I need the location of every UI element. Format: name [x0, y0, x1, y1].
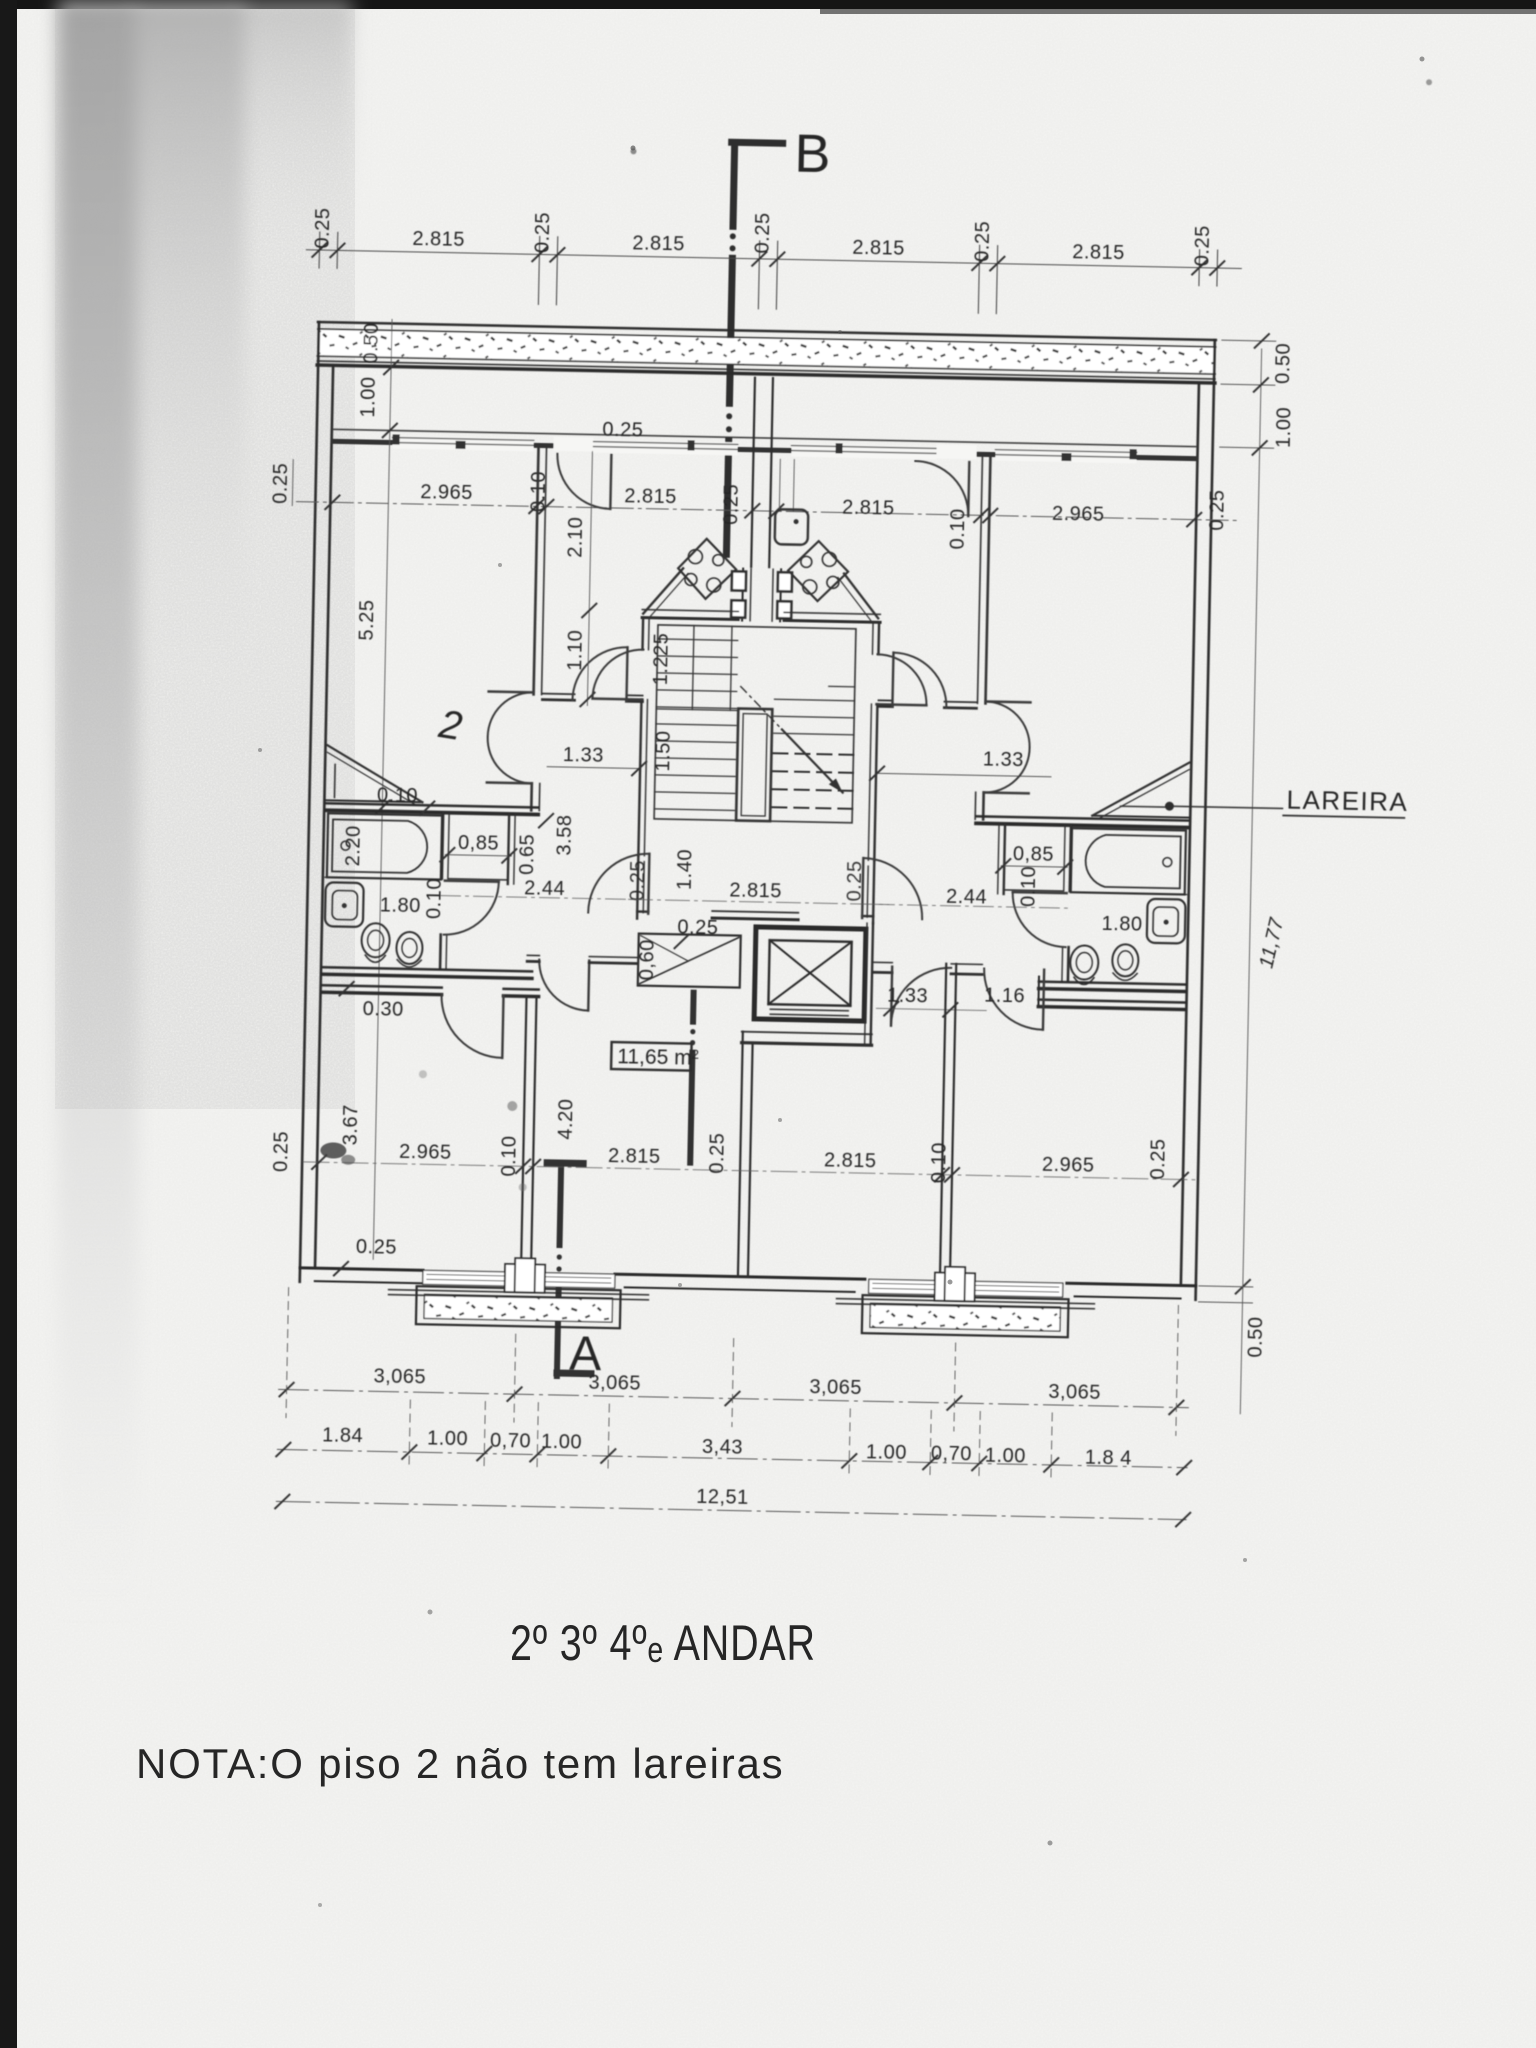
svg-text:0.25: 0.25 — [720, 484, 743, 525]
svg-text:LAREIRA: LAREIRA — [1286, 785, 1408, 817]
svg-text:2.20: 2.20 — [342, 825, 365, 866]
svg-text:0.25: 0.25 — [751, 212, 774, 253]
svg-text:0.25: 0.25 — [677, 916, 718, 939]
svg-text:0.25: 0.25 — [269, 463, 292, 504]
svg-text:0.50: 0.50 — [1244, 1316, 1267, 1357]
svg-text:B: B — [794, 124, 831, 185]
svg-text:0.25: 0.25 — [602, 419, 643, 442]
svg-text:2.44: 2.44 — [946, 886, 987, 909]
svg-text:0.25: 0.25 — [531, 212, 554, 253]
svg-text:3,065: 3,065 — [1048, 1381, 1101, 1404]
svg-text:0.25: 0.25 — [626, 860, 649, 901]
svg-text:1.00: 1.00 — [985, 1445, 1026, 1468]
svg-text:1.00: 1.00 — [541, 1431, 582, 1454]
svg-text:1.00: 1.00 — [866, 1441, 907, 1464]
svg-text:1.80: 1.80 — [380, 894, 421, 917]
svg-text:12,51: 12,51 — [696, 1486, 749, 1509]
svg-text:2.815: 2.815 — [729, 879, 782, 902]
svg-text:0.10: 0.10 — [1017, 866, 1040, 907]
svg-text:0,70: 0,70 — [490, 1430, 531, 1453]
svg-text:1.00: 1.00 — [427, 1427, 468, 1450]
svg-text:1.16: 1.16 — [984, 985, 1025, 1008]
svg-text:0,85: 0,85 — [1013, 843, 1054, 866]
svg-text:2.965: 2.965 — [399, 1141, 452, 1164]
svg-text:2.10: 2.10 — [564, 517, 587, 558]
svg-text:1.225: 1.225 — [650, 632, 673, 685]
svg-text:0.25: 0.25 — [1206, 489, 1229, 530]
svg-text:0.25: 0.25 — [971, 221, 994, 262]
svg-text:0.50: 0.50 — [1272, 343, 1295, 384]
svg-text:1.33: 1.33 — [983, 748, 1024, 771]
svg-text:1.84: 1.84 — [322, 1424, 363, 1447]
svg-text:3,065: 3,065 — [588, 1372, 641, 1395]
svg-text:0.25: 0.25 — [311, 207, 334, 248]
svg-text:0.10: 0.10 — [423, 878, 446, 919]
svg-text:NOTA:O piso 2 não tem lareira: NOTA:O piso 2 não tem lareiras — [136, 1740, 784, 1787]
svg-text:0.10: 0.10 — [928, 1142, 951, 1183]
svg-text:0.50: 0.50 — [360, 322, 383, 363]
svg-text:1.40: 1.40 — [674, 849, 697, 890]
svg-text:0,70: 0,70 — [931, 1443, 972, 1466]
svg-text:2.815: 2.815 — [1072, 241, 1125, 264]
svg-text:2.815: 2.815 — [824, 1149, 877, 1172]
svg-text:2.815: 2.815 — [632, 232, 685, 255]
svg-text:3,065: 3,065 — [809, 1376, 862, 1399]
svg-text:1.00: 1.00 — [1273, 407, 1296, 448]
svg-text:3.67: 3.67 — [339, 1104, 362, 1145]
svg-text:0.10: 0.10 — [498, 1135, 521, 1176]
svg-text:2.815: 2.815 — [842, 497, 895, 520]
svg-text:3.58: 3.58 — [553, 814, 576, 855]
svg-text:1.10: 1.10 — [564, 630, 587, 671]
svg-text:0,60: 0,60 — [636, 939, 659, 980]
svg-text:2.965: 2.965 — [420, 481, 473, 504]
svg-text:1.00: 1.00 — [357, 376, 380, 417]
svg-text:2.815: 2.815 — [624, 485, 677, 508]
svg-text:11,65 m2: 11,65 m2 — [617, 1045, 699, 1070]
svg-text:0.25: 0.25 — [1191, 225, 1214, 266]
svg-text:2.965: 2.965 — [1042, 1154, 1095, 1177]
svg-text:2.815: 2.815 — [412, 228, 465, 251]
svg-text:1.50: 1.50 — [652, 730, 675, 771]
svg-text:0.25: 0.25 — [843, 860, 866, 901]
svg-text:3,065: 3,065 — [373, 1365, 426, 1388]
svg-text:0.10: 0.10 — [947, 508, 970, 549]
svg-text:1.80: 1.80 — [1101, 913, 1142, 936]
svg-text:0.30: 0.30 — [363, 998, 404, 1021]
svg-text:5.25: 5.25 — [356, 599, 379, 640]
svg-text:2.815: 2.815 — [852, 237, 905, 260]
svg-text:3,43: 3,43 — [702, 1436, 743, 1459]
svg-text:0.25: 0.25 — [706, 1132, 729, 1173]
svg-text:1.8 4: 1.8 4 — [1085, 1447, 1132, 1470]
svg-text:1.33: 1.33 — [887, 985, 928, 1008]
svg-text:0.10: 0.10 — [377, 784, 418, 807]
svg-text:4.20: 4.20 — [555, 1098, 578, 1139]
svg-text:2.965: 2.965 — [1052, 503, 1105, 526]
svg-text:0.25: 0.25 — [270, 1131, 293, 1172]
svg-text:2.44: 2.44 — [524, 877, 565, 900]
svg-text:0.25: 0.25 — [1147, 1138, 1170, 1179]
svg-text:0.25: 0.25 — [356, 1236, 397, 1259]
svg-text:0,85: 0,85 — [458, 832, 499, 855]
svg-text:1.33: 1.33 — [563, 744, 604, 767]
svg-text:0.65: 0.65 — [516, 834, 539, 875]
svg-text:2.815: 2.815 — [608, 1145, 661, 1168]
